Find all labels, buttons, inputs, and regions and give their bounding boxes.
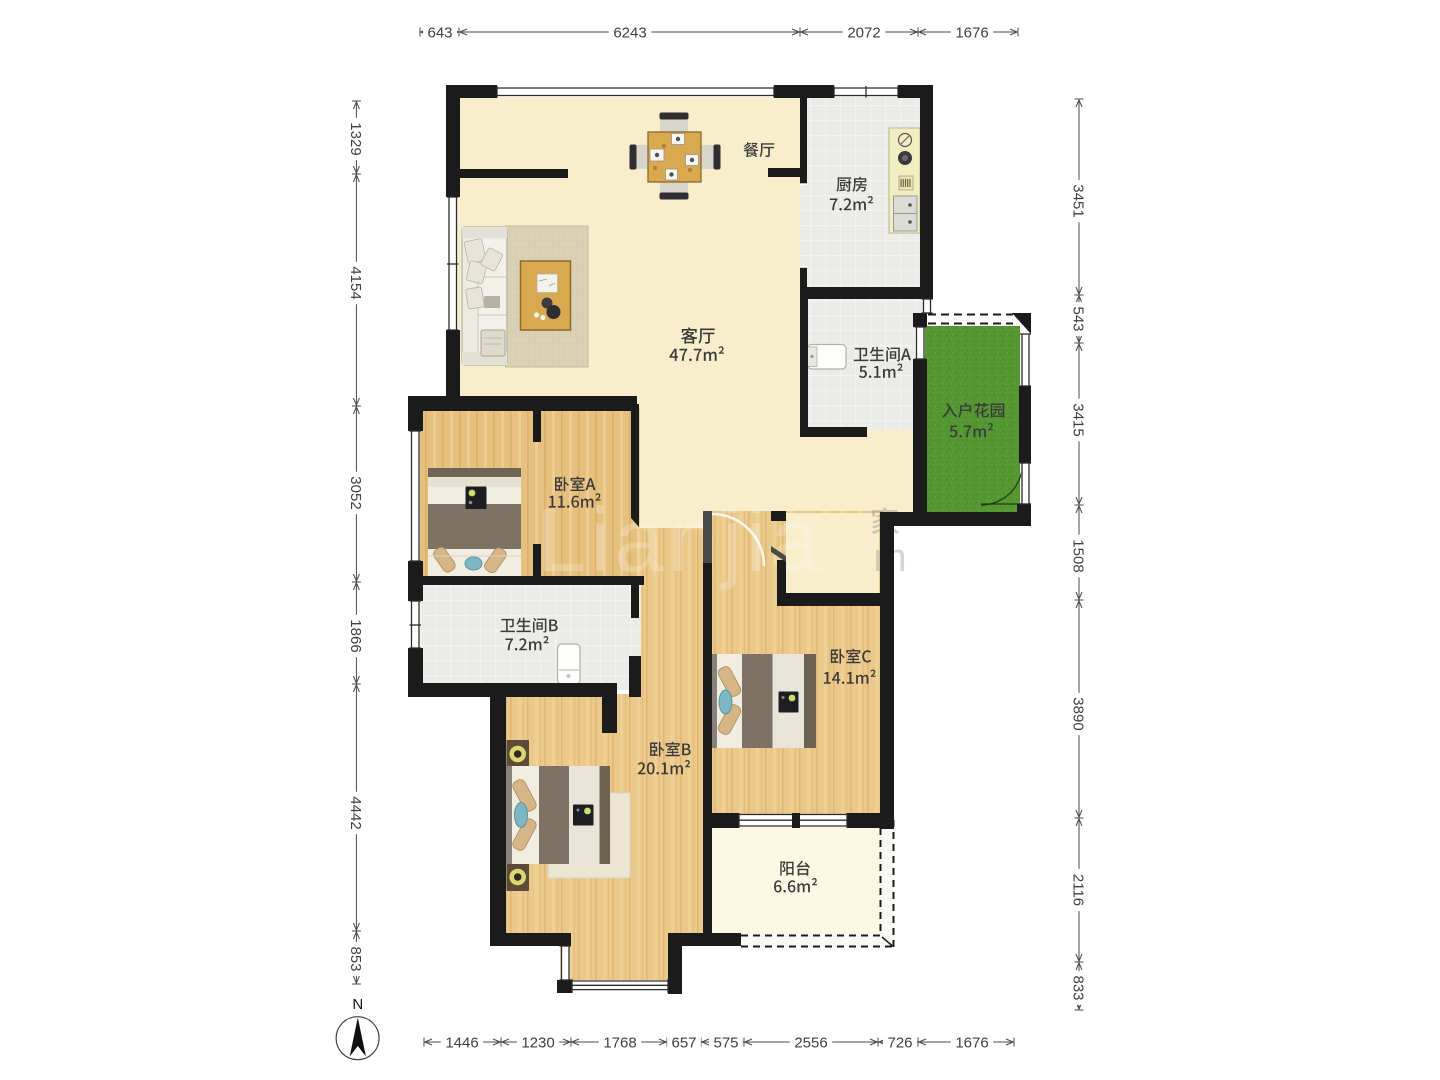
svg-text:2072: 2072 [847, 24, 880, 41]
svg-text:4154: 4154 [347, 266, 364, 299]
svg-text:1446: 1446 [445, 1034, 478, 1051]
svg-text:2116: 2116 [1070, 874, 1087, 906]
svg-text:657: 657 [671, 1034, 696, 1051]
svg-text:N: N [352, 996, 363, 1013]
svg-text:3451: 3451 [1070, 184, 1087, 217]
svg-text:833: 833 [1070, 975, 1087, 1000]
svg-text:1676: 1676 [955, 24, 988, 41]
svg-text:726: 726 [887, 1034, 912, 1051]
svg-text:853: 853 [347, 946, 364, 971]
svg-text:1676: 1676 [955, 1034, 988, 1051]
svg-text:2556: 2556 [794, 1034, 827, 1051]
svg-text:1508: 1508 [1070, 539, 1087, 572]
svg-text:3890: 3890 [1070, 697, 1087, 730]
svg-text:543: 543 [1070, 306, 1087, 331]
svg-text:575: 575 [713, 1034, 738, 1051]
svg-text:4442: 4442 [347, 796, 364, 829]
svg-text:1230: 1230 [521, 1034, 554, 1051]
svg-text:643: 643 [427, 24, 452, 41]
svg-text:1768: 1768 [603, 1034, 636, 1051]
svg-text:3415: 3415 [1070, 403, 1087, 436]
svg-text:3052: 3052 [347, 476, 364, 509]
svg-text:1866: 1866 [347, 619, 364, 652]
svg-text:1329: 1329 [347, 122, 364, 155]
svg-text:6243: 6243 [613, 24, 646, 41]
